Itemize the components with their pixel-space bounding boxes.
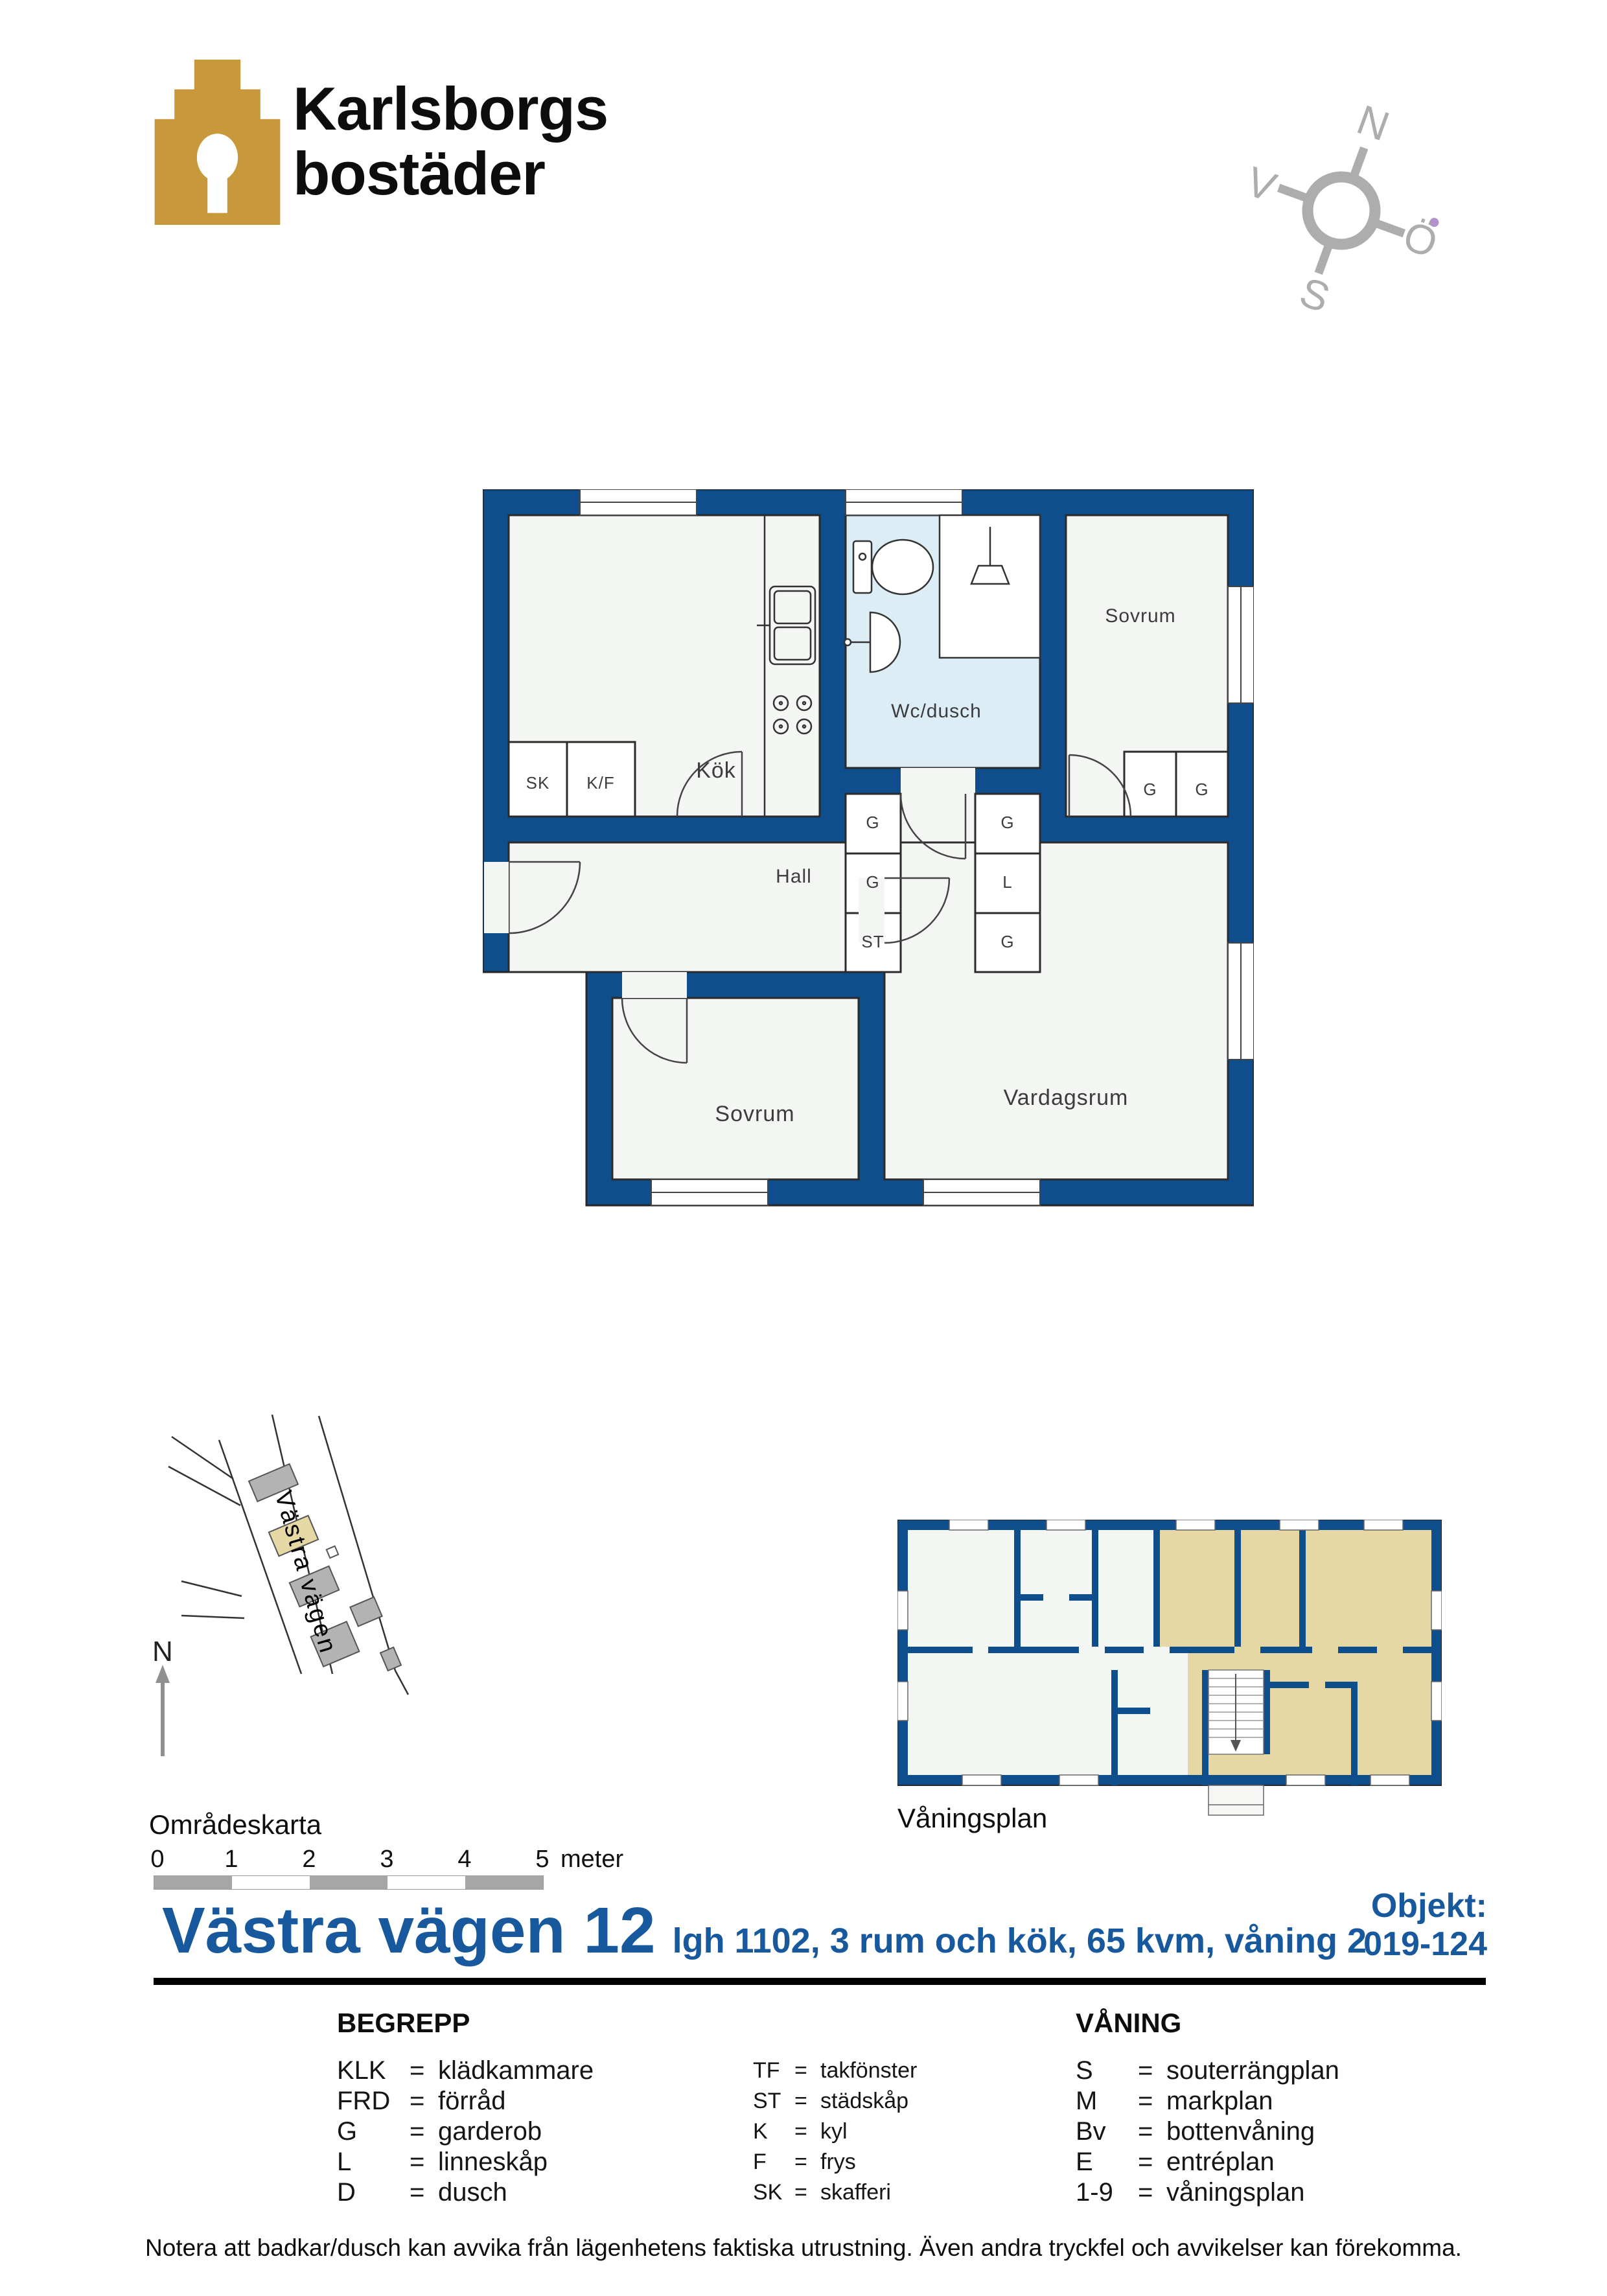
scale-unit: meter <box>561 1846 623 1873</box>
label-g1: G <box>866 813 879 832</box>
map-marker-diamond <box>327 1546 338 1558</box>
overview-entrance <box>1208 1785 1264 1815</box>
label-kf: K/F <box>586 773 614 793</box>
scale-tick-0: 0 <box>150 1846 164 1873</box>
scale-tick-4: 4 <box>457 1846 471 1873</box>
road-side-west2 <box>181 1616 244 1618</box>
scale-tick-5: 5 <box>535 1846 549 1873</box>
label-g3: G <box>1000 813 1014 832</box>
compass-ring <box>1298 167 1384 253</box>
map-north-label: N <box>152 1636 173 1667</box>
label-living: Vardagsrum <box>1004 1085 1129 1110</box>
label-bath: Wc/dusch <box>891 701 982 722</box>
overview-apartment-highlight-top <box>1157 1530 1431 1647</box>
label-st: ST <box>861 932 884 951</box>
legend-row: TF=takfönster <box>753 2056 917 2086</box>
scale-bar-segments <box>154 1875 544 1890</box>
logo-keyhole-stem <box>207 172 227 213</box>
label-sk: SK <box>526 773 550 793</box>
legend-row: K=kyl <box>753 2116 917 2147</box>
legend-row: F=frys <box>753 2147 917 2177</box>
bedroom2-door-opening <box>622 972 687 998</box>
map-north-arrowhead <box>156 1665 170 1683</box>
apartment-floor-plan: Kök Wc/dusch Sovrum Hall Sovrum Vardagsr… <box>483 489 1254 1209</box>
object-id-block: Objekt: 019-124 <box>1296 1887 1487 1964</box>
footer-note: Notera att badkar/dusch kan avvika från … <box>0 2234 1607 2262</box>
legend-row: L=linneskåp <box>337 2147 594 2177</box>
map-building <box>350 1597 382 1626</box>
legend-row: E=entréplan <box>1076 2147 1339 2177</box>
legend-concepts-col1: KLK=klädkammare FRD=förråd G=garderob L=… <box>337 2056 594 2208</box>
legend-row: D=dusch <box>337 2177 594 2208</box>
compass-label-west: V <box>1240 157 1282 211</box>
legend-floors-header: VÅNING <box>1076 2008 1181 2039</box>
label-l: L <box>1002 872 1012 892</box>
floor-overview-caption: Våningsplan <box>897 1803 1047 1834</box>
title-details: lgh 1102, 3 rum och kök, 65 kvm, våning … <box>673 1921 1367 1961</box>
legend-floors-col: S=souterrängplan M=markplan Bv=bottenvån… <box>1076 2056 1339 2208</box>
label-hall: Hall <box>776 866 812 887</box>
scale-tick-2: 2 <box>302 1846 316 1873</box>
scale-tick-1: 1 <box>224 1846 238 1873</box>
compass-label-south: S <box>1294 268 1336 321</box>
legend-row: FRD=förråd <box>337 2086 594 2116</box>
map-building <box>380 1647 401 1671</box>
legend-row: 1-9=våningsplan <box>1076 2177 1339 2208</box>
label-g5: G <box>1143 780 1157 799</box>
object-number: 019-124 <box>1296 1925 1487 1964</box>
compass-spoke-e <box>1378 224 1404 234</box>
legend-row: SK=skafferi <box>753 2177 917 2208</box>
title-address: Västra vägen 12 <box>162 1894 656 1968</box>
label-g6: G <box>1195 780 1208 799</box>
logo-line2: bostäder <box>293 141 608 206</box>
legend-row: Bv=bottenvåning <box>1076 2116 1339 2147</box>
scale-tick-3: 3 <box>380 1846 393 1873</box>
legend-row: G=garderob <box>337 2116 594 2147</box>
compass-spoke-n <box>1355 148 1365 174</box>
legend-row: S=souterrängplan <box>1076 2056 1339 2086</box>
entry-door-opening <box>484 862 509 933</box>
room-bedroom2 <box>612 998 859 1179</box>
legend-concepts-header: BEGREPP <box>337 2008 470 2039</box>
logo-wordmark: Karlsborgs bostäder <box>293 76 608 206</box>
legend-row: KLK=klädkammare <box>337 2056 594 2086</box>
legend-row: ST=städskåp <box>753 2086 917 2116</box>
legend-concepts-col2: TF=takfönster ST=städskåp K=kyl F=frys S… <box>753 2056 917 2208</box>
divider-rule <box>154 1978 1486 1985</box>
label-bedroom2: Sovrum <box>715 1102 794 1126</box>
compass-spoke-w <box>1278 188 1304 198</box>
floorplan-sheet: Karlsborgs bostäder N Ö S V <box>0 0 1607 2296</box>
area-map-caption: Områdeskarta <box>149 1809 321 1840</box>
label-g4: G <box>1000 932 1014 951</box>
compass-spoke-s <box>1319 247 1328 273</box>
object-label: Objekt: <box>1296 1887 1487 1925</box>
overview-staircase <box>1208 1670 1264 1754</box>
floor-overview-plan <box>897 1520 1442 1824</box>
legend-row: M=markplan <box>1076 2086 1339 2116</box>
label-bedroom1: Sovrum <box>1105 605 1175 627</box>
logo-keyhole-icon <box>154 60 281 225</box>
label-g2: G <box>866 872 879 892</box>
toilet-icon <box>853 540 933 594</box>
compass-label-north: N <box>1351 96 1395 150</box>
page-title: Västra vägen 12 lgh 1102, 3 rum och kök,… <box>162 1894 1289 1968</box>
scale-bar: 0 1 2 3 4 5 meter <box>154 1846 646 1897</box>
logo-line1: Karlsborgs <box>293 76 608 141</box>
road-side-west <box>181 1581 242 1596</box>
compass-rose: N Ö S V <box>1218 87 1464 334</box>
label-kitchen: Kök <box>696 758 736 783</box>
area-map: Västra vägen N <box>146 1390 586 1818</box>
room-living <box>884 842 1228 1179</box>
